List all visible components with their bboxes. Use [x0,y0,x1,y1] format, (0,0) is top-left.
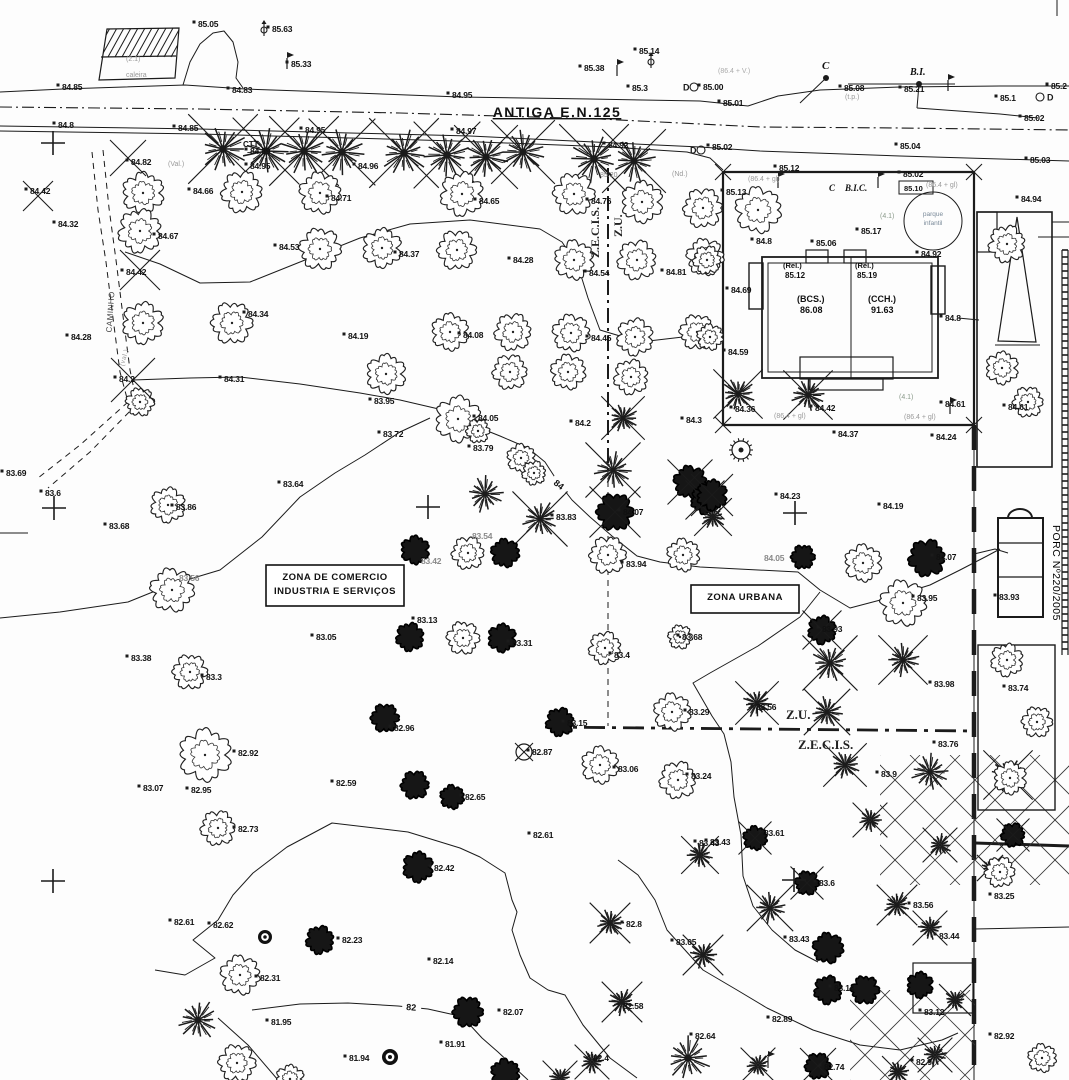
tree-symbol-s [991,643,1023,677]
spot-height-dot [989,893,992,896]
spot-height-dot [609,652,612,655]
tree-symbol-d [790,545,815,568]
boundary-zone-label: Z.E.C.I.S. [798,737,853,752]
spot-height-label: 85.1 [1000,93,1016,103]
contour-line [693,592,820,962]
tree-symbol-rx [369,118,439,188]
spot-height-dot [428,958,431,961]
spot-height-label: 83.74 [1008,683,1029,693]
spot-height-label: 85.04 [900,141,921,151]
zone-label-text: ZONA URBANA [707,592,783,603]
tree-symbol-s [667,538,700,572]
tree-symbol-s [277,1064,304,1080]
spot-height-dot [508,257,511,260]
spot-height-label: 81.94 [349,1053,370,1063]
map-text-label: (86.4 + gl) [748,176,780,183]
contour-line [974,549,1008,554]
spot-height-label: 85.02 [712,142,733,152]
structure-outline [810,379,883,390]
spot-height-dot [814,880,817,883]
drain-marker-icon: D [1036,93,1054,103]
spot-height-dot [300,127,303,130]
spot-height-dot [326,195,329,198]
spot-height-dot [227,87,230,90]
spot-height-label: 83.6 [45,488,61,498]
spot-height-dot [759,830,762,833]
spot-height-label: 85.02 [1024,113,1045,123]
point-marker [823,75,829,81]
tree-symbol-s [682,189,722,228]
tree-symbol-s [617,240,656,280]
spot-height-label: 83.79 [473,443,494,453]
spot-height-label: 83.31 [512,638,533,648]
dome-roof [1008,509,1032,518]
tree-symbol-s [367,353,405,394]
zone-boundary-line [545,727,975,731]
tree-symbol-d [400,771,429,799]
tree-symbol-s [845,544,882,583]
gear-circle-icon [729,438,753,461]
spot-height-dot [681,417,684,420]
contour-line [183,31,243,88]
survey-flag-icon [617,59,624,76]
spot-height-dot [718,100,721,103]
spot-height-label: 83.38 [131,653,152,663]
spot-height-dot [751,704,754,707]
spot-height-dot [66,334,69,337]
tree-symbol-s [1021,707,1053,737]
spot-height-dot [707,144,710,147]
tree-symbol-s [494,314,531,351]
spot-height-dot [784,936,787,939]
spot-height-label: 83.93 [822,624,843,634]
spot-height-dot [331,780,334,783]
spot-height-dot [811,240,814,243]
spot-height-dot [775,493,778,496]
spot-height-label: 83.12 [924,1007,945,1017]
spot-height-label: 82.92 [238,748,259,758]
spot-height-dot [929,681,932,684]
tree-symbol-s [210,303,253,343]
spot-height-dot [1003,404,1006,407]
spot-height-label: 84.71 [331,193,352,203]
map-text-label: parque [923,211,944,218]
spot-height-label: 84.8 [58,120,74,130]
spot-height-label: 84.37 [838,429,859,439]
spot-height-label: 82.87 [532,747,553,757]
tree-symbol-s [492,355,527,389]
zone-boundary-line [48,404,137,488]
spot-height-dot [613,766,616,769]
spot-height-dot [278,481,281,484]
spot-height-label: 84.96 [358,161,379,171]
spot-height-dot [819,1064,822,1067]
survey-flag-icon [768,1051,775,1068]
spot-height-label: 85.08 [844,83,865,93]
boundary-zone-label: Z.U. [786,707,811,722]
spot-height-label: 83.56 [756,702,777,712]
spot-height-dot [186,787,189,790]
spot-height-label: 84.8 [756,236,772,246]
spot-height-label: 84.28 [513,255,534,265]
spot-height-label: 83.4 [614,650,630,660]
spot-height-dot [460,794,463,797]
spot-height-dot [344,1055,347,1058]
spot-height-label: 83.68 [682,632,703,642]
spot-height-label: 84.53 [279,242,300,252]
spot-height-dot [40,490,43,493]
spot-height-label: 84.97 [456,126,477,136]
spot-height-dot [412,617,415,620]
map-text-label: (Rel.) [855,261,874,270]
spot-height-dot [243,311,246,314]
tree-symbol-s [218,1045,257,1080]
spot-height-label: 84.61 [945,399,966,409]
map-text-label: (Val.) [168,161,184,168]
tree-symbol-rx [747,885,793,931]
spot-height-label: 84.2 [575,418,591,428]
structure-outline [998,518,1043,617]
spot-height-label: 84.59 [728,347,749,357]
spot-height-label: 84.76 [591,196,612,206]
spot-height-label: 83.43 [710,837,731,847]
contour-line [958,318,979,320]
spot-height-label: 83.68 [109,521,130,531]
contour-line [155,920,218,975]
tree-symbol-s [994,761,1026,795]
road-name-label: ANTIGA E.N.125 [493,104,622,120]
svg-text:D: D [690,146,697,156]
tree-symbol-s [654,693,691,731]
spot-height-label: 82.95 [191,785,212,795]
spot-height-dot [570,420,573,423]
spot-height-label: 82.92 [994,1031,1015,1041]
spot-height-label: 84.95 [250,161,271,171]
spot-height-label: 84.07 [936,552,957,562]
spot-height-dot [994,594,997,597]
spot-height-label: 83.05 [676,937,697,947]
spot-height-label: 84.19 [348,331,369,341]
spot-height-dot [527,749,530,752]
spot-height-dot [551,514,554,517]
spot-height-dot [451,128,454,131]
spot-height-dot [53,221,56,224]
crossed-circle-icon [515,743,533,761]
spot-height-dot [201,674,204,677]
spot-height-label: 83.9 [881,769,897,779]
spot-height-dot [839,85,842,88]
contour-line [800,78,826,103]
spot-height-dot [989,1033,992,1036]
spot-height-dot [171,504,174,507]
map-text-label: C [822,60,830,72]
tree-symbol-s [125,388,154,416]
spot-height-label: 83.93 [999,592,1020,602]
drain-marker-icon: D [683,83,698,93]
spot-height-label: 84.94 [1021,194,1042,204]
tree-symbol-dx [997,819,1030,852]
spot-height-label: 85.2 [1051,81,1067,91]
spot-height-dot [931,434,934,437]
spot-height-dot [995,95,998,98]
labels: 85.0585.6385.3384.8584.8384.884.8584.958… [1,19,1068,1072]
spot-height-dot [473,415,476,418]
spot-height-label: 84.34 [248,309,269,319]
spot-height-dot [353,163,356,166]
spot-height-dot [686,773,689,776]
tree-symbol-rx [878,635,927,684]
tree-symbol-rx [601,396,645,440]
map-text-label: (86.4 + V.) [718,68,750,75]
spot-height-label: 83.14 [834,983,855,993]
tree-symbol-s [220,955,260,995]
spot-height-label: 83.98 [934,679,955,689]
spot-height-label: 85.03 [1030,155,1051,165]
boundary-zone-label: Z.E.C.I.S. [588,207,602,258]
spot-height-dot [940,315,943,318]
tree-symbol-d [452,997,483,1027]
survey-map-page: DDD85.0585.6385.3384.8584.8384.884.8584.… [0,0,1069,1080]
tree-symbol-f [382,1049,398,1065]
spot-height-label: 83.64 [283,479,304,489]
tree-symbol-s [436,231,476,269]
spot-height-label: 82.59 [336,778,357,788]
tree-symbol-s [363,227,401,268]
map-text-label: CTT [243,140,259,149]
spot-height-label: 84.82 [131,157,152,167]
map-text-label: 85.12 [785,271,806,280]
map-text-label: B.I. [909,67,926,78]
spot-height-dot [579,65,582,68]
spot-height-dot [690,1033,693,1036]
tree-symbol-s [446,622,480,654]
tree-symbol-d [491,1058,519,1080]
spot-height-dot [829,985,832,988]
map-text-label: (Rel.) [783,261,802,270]
spot-height-label: 84.05 [478,413,499,423]
spot-height-label: 83.6 [819,878,835,888]
spot-height-label: 83.06 [618,764,639,774]
spot-height-dot [895,143,898,146]
spot-height-dot [208,922,211,925]
map-text-label: 85.19 [857,271,878,280]
spot-height-dot [233,826,236,829]
tree-symbol-rx [802,635,857,690]
map-text-label: (86.4 + gl) [926,182,958,189]
map-text-label: (2.1) [126,56,140,63]
spot-height-label: 85.06 [816,238,837,248]
spot-height-dot [498,1009,501,1012]
spot-height-label: 85.3 [632,83,648,93]
spot-height-label: 83.42 [421,556,442,566]
tree-symbol-s [986,351,1018,385]
spot-height-label: 83.43 [789,934,810,944]
spot-height-label: 85.38 [584,63,605,73]
spot-height-dot [266,1019,269,1022]
map-text-label: (4.1) [880,213,894,220]
spot-height-dot [311,634,314,637]
map-text-label: (t.p.) [845,94,859,101]
spot-height-dot [898,171,901,174]
spot-height-dot [817,626,820,629]
spot-height-dot [255,975,258,978]
grid-cross-icon [41,131,65,155]
map-text-label: caleira [126,72,147,79]
spot-height-dot [621,921,624,924]
spot-height-label: 83.44 [939,931,960,941]
spot-height-label: 83.76 [938,739,959,749]
spot-height-dot [528,832,531,835]
spot-height-label: 84.69 [731,285,752,295]
tree-symbol-s [451,537,484,569]
boundary-zone-label: Z.U. [611,214,625,237]
tree-symbol-s [180,728,231,783]
spot-height-dot [878,503,881,506]
zone-label-text: INDUSTRIA E SERVIÇOS [274,586,396,597]
spot-height-label: 82.96 [394,723,415,733]
spot-height-label: 82.31 [260,973,281,983]
spot-height-label: 84.83 [232,85,253,95]
spot-height-dot [876,771,879,774]
spot-height-dot [627,85,630,88]
spot-height-label: 84.42 [815,403,836,413]
spot-height-label: 83.56 [913,900,934,910]
survey-flag-icon [948,74,955,91]
spot-height-dot [684,709,687,712]
spot-height-dot [188,188,191,191]
spot-height-dot [153,233,156,236]
spot-height-dot [586,198,589,201]
spot-height-label: 84.45 [591,333,612,343]
spot-height-dot [562,720,565,723]
spot-height-dot [104,523,107,526]
spot-height-label: 84.32 [58,219,79,229]
spot-height-label: 82.73 [238,824,259,834]
spot-height-label: 85.17 [861,226,882,236]
map-text-label: (86.4 + gl) [774,413,806,420]
spot-height-label: 84.95 [305,125,326,135]
grid-cross-icon [416,495,440,519]
spot-height-dot [677,634,680,637]
spot-height-label: 83.24 [691,771,712,781]
spot-height-label: 83.56 [179,573,200,583]
grid-cross-icon [41,869,65,893]
spot-height-dot [621,561,624,564]
spot-height-dot [934,933,937,936]
spot-height-dot [908,902,911,905]
tree-symbol-rx [853,803,888,838]
tree-symbol-rx [543,1061,578,1080]
tree-symbol-rx [877,885,918,926]
tree-symbol-s [589,537,627,573]
spot-height-dot [751,238,754,241]
spot-height-label: 84.81 [666,267,687,277]
spot-height-label: 85.01 [723,98,744,108]
spot-height-dot [661,269,664,272]
zone-label-text: ZONA DE COMERCIO [282,572,387,583]
tree-symbol-s [118,209,161,253]
tree-symbol-s [522,461,546,485]
spot-height-dot [121,269,124,272]
spot-height-label: 82.42 [434,863,455,873]
spot-height-label: 82.58 [623,1001,644,1011]
spot-height-label: 84.23 [780,491,801,501]
spot-height-dot [618,509,621,512]
tree-symbol-r [469,475,504,513]
tree-symbol-s [617,318,653,356]
hatch-fill [80,28,187,57]
spot-height-label: 83.61 [764,828,785,838]
spot-height-label: 84.37 [399,249,420,259]
spot-height-dot [1,470,4,473]
spot-height-dot [705,839,708,842]
contour-value-label: 82 [406,1002,417,1013]
tree-symbol-s [613,359,647,395]
spot-height-dot [856,228,859,231]
spot-height-label: 82.64 [695,1031,716,1041]
spot-height-label: 82.9 [916,1057,932,1067]
spot-height-dot [267,26,270,29]
survey-map-canvas: DDD85.0585.6385.3384.8584.8384.884.8584.… [0,0,1069,1080]
spot-height-dot [126,159,129,162]
tree-symbol-rx [602,129,666,193]
spot-height-label: 82.07 [503,1007,524,1017]
spot-height-dot [694,840,697,843]
spot-height-label: 84.28 [71,332,92,342]
contour-line [975,927,1069,929]
spot-height-label: 82.62 [213,920,234,930]
spot-height-label: 84.42 [126,267,147,277]
tree-symbol-s [200,811,235,846]
map-text-label: infantil [924,220,943,227]
spot-height-label: 85.00 [703,82,724,92]
spot-height-dot [447,92,450,95]
tree-symbol-s [123,301,163,344]
spot-height-label: 83.29 [689,707,710,717]
spot-height-label: 83.86 [176,502,197,512]
spot-height-dot [394,251,397,254]
tree-symbol-s [1028,1044,1057,1073]
spot-height-label: 84.24 [936,432,957,442]
spot-height-label: 83.95 [374,396,395,406]
spot-height-dot [57,84,60,87]
spot-height-label: 84.54 [589,268,610,278]
spot-height-dot [173,125,176,128]
spot-height-dot [378,431,381,434]
spot-height-label: 84.8 [945,313,961,323]
spot-height-dot [440,1041,443,1044]
spot-height-dot [919,1009,922,1012]
spot-height-label: 85.02 [903,169,924,179]
spot-height-dot [25,188,28,191]
zone-boundary-line [38,402,128,478]
spot-height-label: 85.21 [904,84,925,94]
tree-symbol-r [179,1002,216,1037]
spot-height-dot [931,554,934,557]
spot-height-label: 84.92 [608,140,629,150]
tree-symbol-rx [590,903,631,944]
spot-height-label: 83.54 [472,531,493,541]
spot-height-label: 84.85 [178,123,199,133]
tree-symbol-dx [739,822,772,855]
spot-height-dot [245,163,248,166]
spot-height-label: 83.25 [994,891,1015,901]
tree-symbol-d [306,926,334,955]
svg-text:D: D [1047,93,1054,103]
spot-height-label: 84.3 [686,415,702,425]
tree-symbol-s [298,228,341,269]
spot-height-label: 81.91 [445,1039,466,1049]
